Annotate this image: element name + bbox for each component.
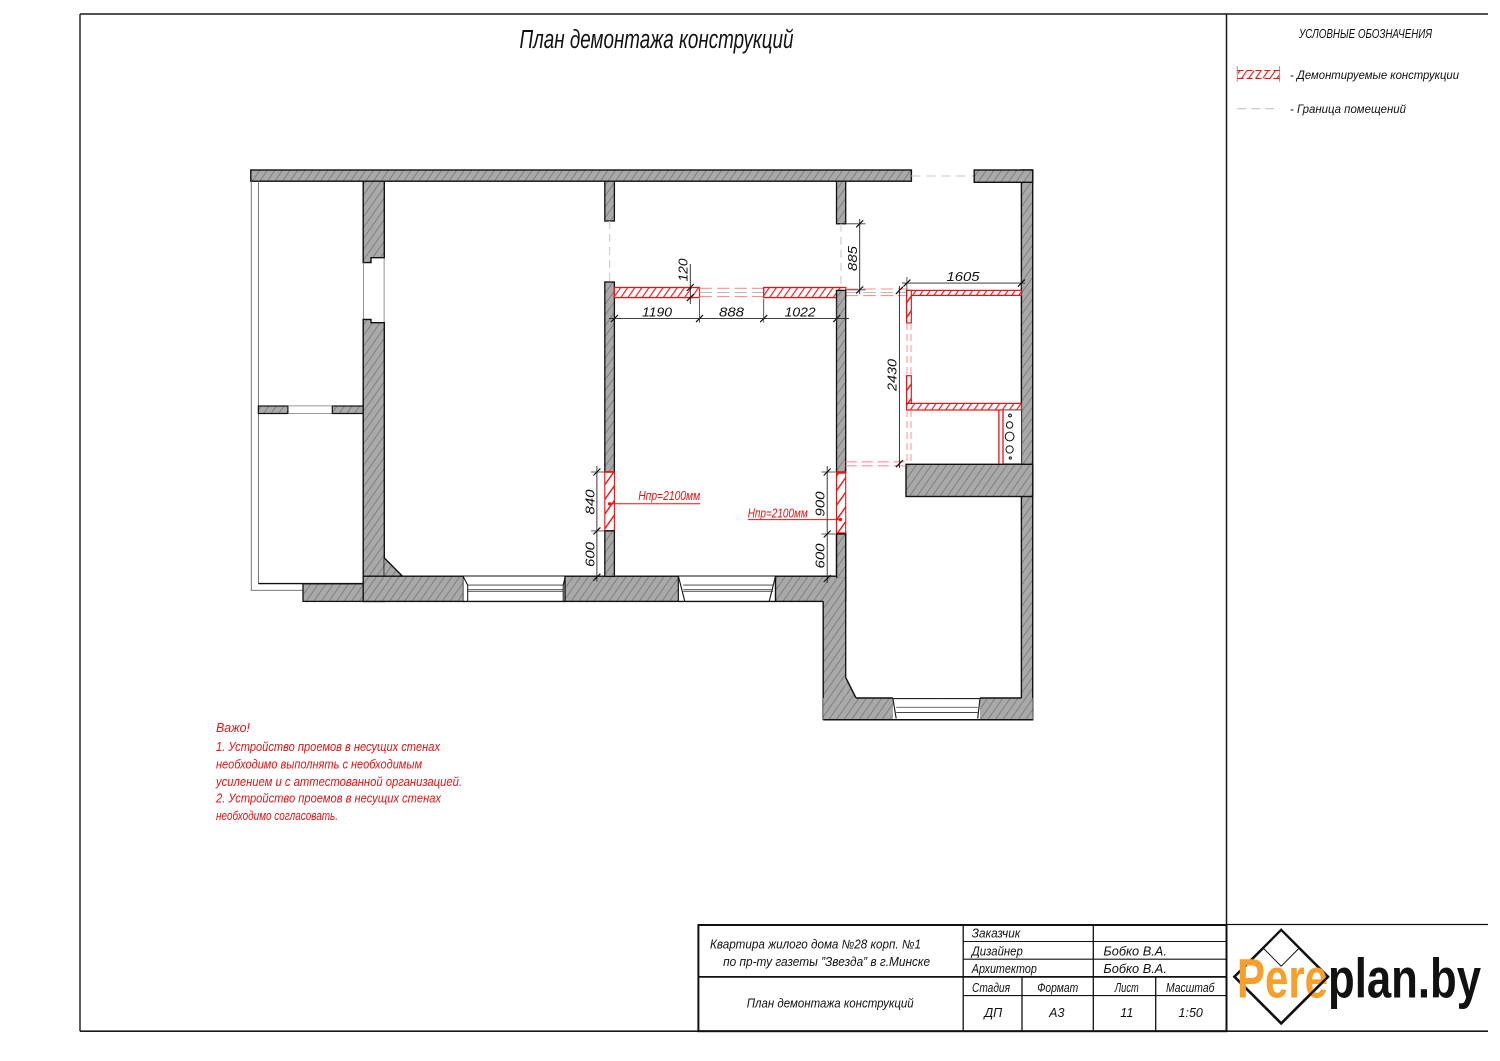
svg-text:Масштаб: Масштаб	[1166, 981, 1215, 995]
svg-text:Заказчик: Заказчик	[972, 927, 1022, 941]
svg-text:1022: 1022	[785, 304, 817, 319]
svg-text:Архитектор: Архитектор	[971, 962, 1037, 976]
svg-text:Лист: Лист	[1114, 981, 1139, 995]
svg-text:Pere: Pere	[1237, 947, 1328, 1010]
svg-text:А3: А3	[1048, 1006, 1064, 1020]
svg-text:Важо!: Важо!	[216, 720, 250, 735]
svg-text:Формат: Формат	[1037, 981, 1078, 995]
svg-text:- Демонтируемые конструкции: - Демонтируемые конструкции	[1290, 68, 1459, 82]
svg-text:1190: 1190	[642, 304, 673, 319]
svg-text:600: 600	[813, 543, 828, 569]
svg-text:по пр-ту газеты ”Звезда” в г.М: по пр-ту газеты ”Звезда” в г.Минске	[723, 955, 930, 969]
svg-text:11: 11	[1120, 1006, 1133, 1020]
svg-text:усилением и с аттестованной ор: усилением и с аттестованной организацией…	[215, 774, 462, 789]
svg-text:Нпр=2100мм: Нпр=2100мм	[748, 506, 808, 521]
svg-text:Квартира жилого дома №28 корп: Квартира жилого дома №28 корп. №1	[710, 937, 921, 951]
svg-text:План демонтажа конструкций: План демонтажа конструкций	[520, 26, 794, 54]
svg-text:1. Устройство проемов в несущи: 1. Устройство проемов в несущих стенах	[216, 739, 441, 754]
svg-text:необходимо согласовать.: необходимо согласовать.	[216, 808, 338, 823]
svg-text:необходимо выполнять с необход: необходимо выполнять с необходимым	[216, 757, 422, 772]
svg-text:ДП: ДП	[982, 1006, 1003, 1020]
svg-text:УСЛОВНЫЕ ОБОЗНАЧЕНИЯ: УСЛОВНЫЕ ОБОЗНАЧЕНИЯ	[1298, 27, 1432, 41]
svg-text:plan.by: plan.by	[1328, 947, 1481, 1010]
svg-text:2430: 2430	[885, 358, 900, 392]
svg-text:120: 120	[676, 258, 691, 282]
svg-text:885: 885	[845, 245, 860, 271]
svg-text:600: 600	[583, 541, 598, 567]
svg-text:- Граница помещений: - Граница помещений	[1290, 102, 1406, 116]
svg-text:2. Устройство проемов в несущи: 2. Устройство проемов в несущих стенах	[215, 791, 441, 806]
svg-text:План демонтажа конструкций: План демонтажа конструкций	[747, 997, 914, 1011]
svg-text:1605: 1605	[947, 269, 981, 284]
svg-text:Дизайнер: Дизайнер	[970, 945, 1023, 959]
svg-text:Бобко В.А.: Бобко В.А.	[1103, 945, 1167, 959]
svg-text:Нпр=2100мм: Нпр=2100мм	[638, 488, 700, 503]
svg-text:1:50: 1:50	[1179, 1006, 1203, 1020]
svg-text:840: 840	[583, 489, 598, 515]
svg-text:Бобко В.А.: Бобко В.А.	[1103, 962, 1167, 976]
svg-text:900: 900	[813, 491, 828, 517]
svg-text:Стадия: Стадия	[972, 981, 1010, 995]
svg-text:888: 888	[719, 304, 745, 319]
